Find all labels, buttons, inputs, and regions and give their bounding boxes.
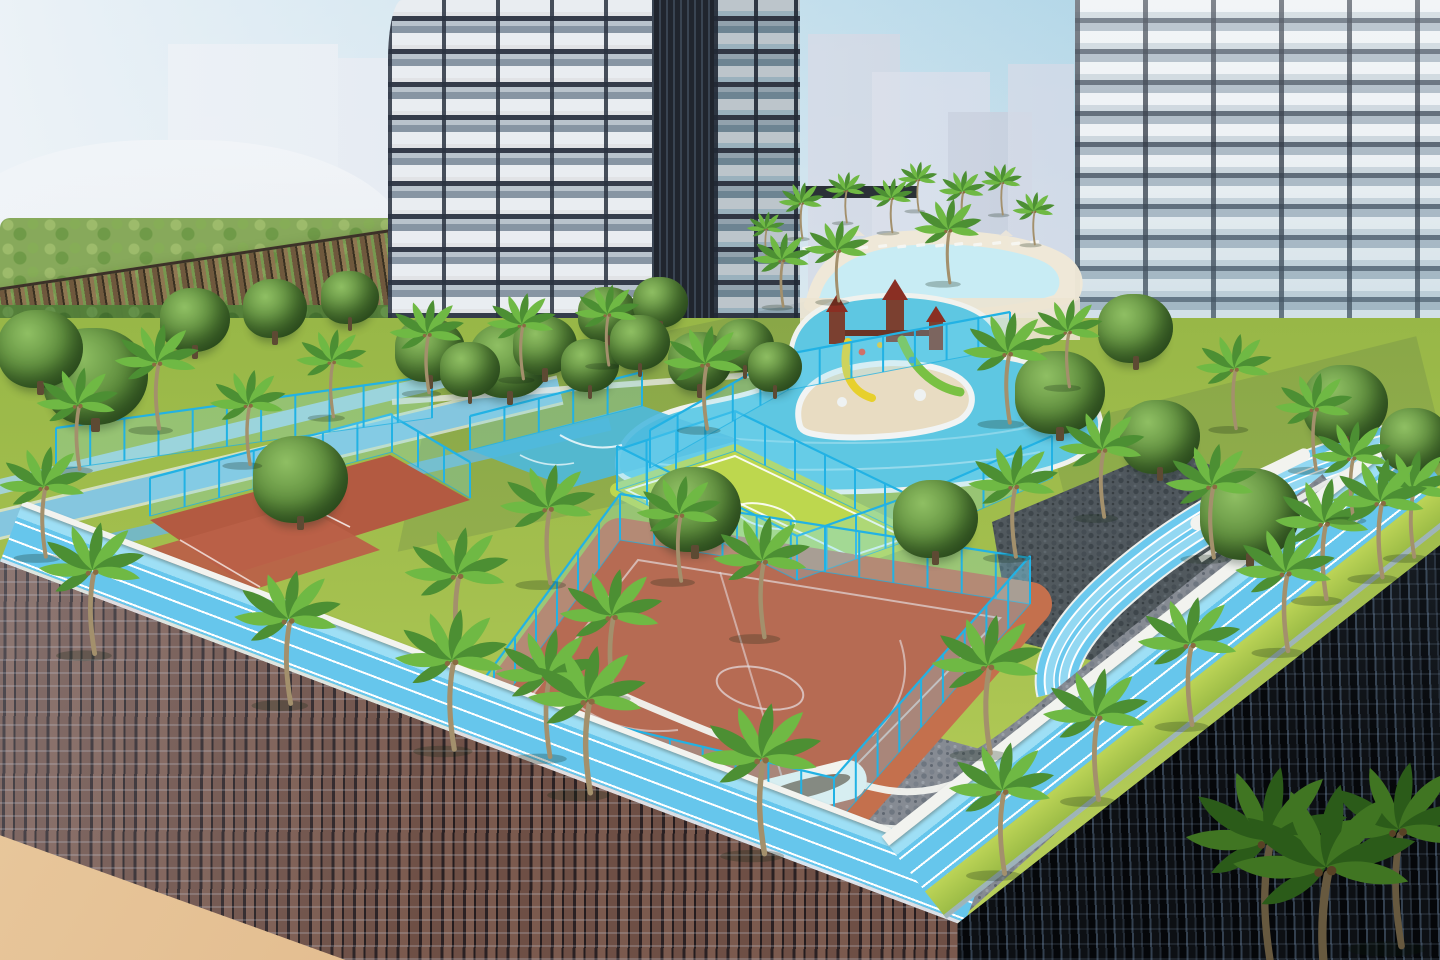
palm-tree <box>28 510 157 660</box>
rendering-canvas <box>0 0 1440 960</box>
foreground-vegetation <box>0 0 1440 960</box>
palm-tree <box>223 558 354 710</box>
palm-tree <box>1322 447 1439 583</box>
palm-tree <box>383 596 521 756</box>
palm-tree <box>516 632 660 800</box>
fern-frond <box>1214 763 1438 960</box>
palm-tree <box>688 689 836 861</box>
